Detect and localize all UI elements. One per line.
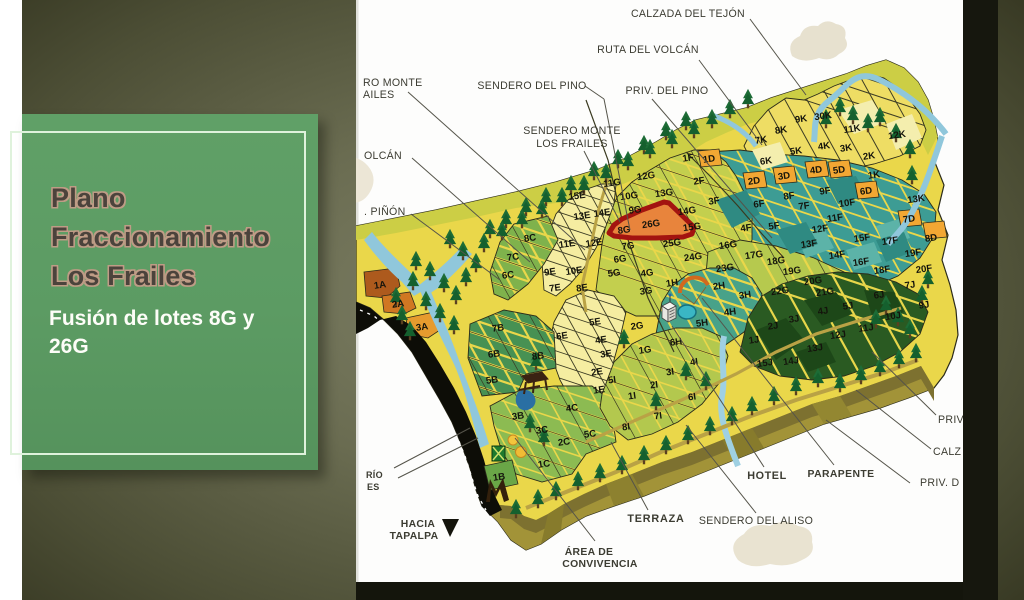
svg-text:2C: 2C [557, 436, 571, 449]
svg-text:RUTA DEL VOLCÁN: RUTA DEL VOLCÁN [597, 43, 699, 56]
svg-text:7J: 7J [904, 279, 916, 291]
svg-text:TERRAZA: TERRAZA [627, 513, 684, 525]
svg-text:4D: 4D [809, 164, 823, 177]
svg-text:13J: 13J [806, 342, 823, 355]
svg-text:6K: 6K [759, 155, 773, 168]
svg-text:12F: 12F [811, 223, 829, 236]
svg-text:8C: 8C [523, 232, 537, 245]
svg-text:CALZADA DEL TEJÓN: CALZADA DEL TEJÓN [631, 7, 745, 20]
svg-text:1B: 1B [492, 471, 506, 484]
svg-text:PARAPENTE: PARAPENTE [808, 469, 875, 480]
svg-text:4E: 4E [594, 334, 608, 347]
svg-text:RO MONTE: RO MONTE [363, 77, 423, 89]
svg-text:3B: 3B [511, 410, 525, 423]
svg-text:5B: 5B [485, 374, 499, 387]
svg-text:14J: 14J [782, 355, 799, 368]
svg-text:18F: 18F [873, 264, 891, 277]
svg-text:8D: 8D [924, 232, 938, 245]
svg-text:3J: 3J [788, 313, 800, 325]
svg-text:7E: 7E [548, 282, 562, 295]
svg-text:14F: 14F [828, 249, 846, 262]
svg-text:2K: 2K [862, 150, 876, 163]
svg-text:1F: 1F [682, 152, 695, 164]
svg-text:4H: 4H [723, 306, 737, 319]
svg-text:8F: 8F [783, 190, 796, 202]
svg-text:RÍO: RÍO [366, 470, 383, 480]
svg-text:19F: 19F [904, 247, 922, 260]
svg-text:4F: 4F [740, 222, 753, 234]
svg-text:HACIA: HACIA [401, 519, 436, 530]
svg-text:6H: 6H [669, 336, 683, 349]
svg-text:1E: 1E [592, 384, 606, 397]
svg-text:. PIÑÓN: . PIÑÓN [364, 205, 406, 218]
svg-text:SENDERO MONTE: SENDERO MONTE [523, 125, 621, 137]
svg-text:1K: 1K [867, 169, 881, 182]
svg-text:4G: 4G [640, 267, 654, 280]
svg-text:11F: 11F [826, 212, 844, 225]
svg-text:1H: 1H [665, 277, 679, 290]
svg-text:2G: 2G [630, 320, 644, 333]
svg-text:16F: 16F [852, 256, 870, 269]
svg-text:PRIV: PRIV [938, 414, 965, 426]
svg-text:2A: 2A [391, 298, 405, 311]
svg-text:3F: 3F [708, 195, 721, 207]
svg-text:1J: 1J [748, 334, 760, 346]
svg-text:4J: 4J [817, 305, 829, 317]
svg-text:20F: 20F [915, 263, 933, 276]
svg-text:CONVIVENCIA: CONVIVENCIA [562, 559, 638, 570]
svg-text:2J: 2J [767, 320, 779, 332]
svg-text:3H: 3H [738, 289, 752, 302]
svg-text:6C: 6C [501, 269, 515, 282]
svg-text:SENDERO DEL ALISO: SENDERO DEL ALISO [699, 515, 813, 527]
svg-text:OLCÁN: OLCÁN [364, 149, 402, 162]
svg-text:9G: 9G [628, 204, 642, 217]
svg-text:7C: 7C [506, 251, 520, 264]
svg-text:1G: 1G [638, 344, 652, 357]
svg-text:1A: 1A [373, 279, 387, 292]
svg-text:7D: 7D [902, 213, 916, 226]
svg-text:5F: 5F [768, 220, 781, 232]
svg-text:6D: 6D [859, 185, 873, 198]
svg-text:2H: 2H [712, 280, 726, 293]
svg-text:7F: 7F [798, 200, 811, 212]
svg-text:8B: 8B [531, 350, 545, 363]
svg-text:8K: 8K [774, 124, 788, 137]
svg-text:SENDERO DEL PINO: SENDERO DEL PINO [477, 80, 586, 92]
svg-text:9J: 9J [918, 299, 930, 311]
svg-text:LOS FRAILES: LOS FRAILES [536, 138, 608, 150]
svg-text:6J: 6J [873, 289, 885, 301]
svg-text:3K: 3K [839, 142, 853, 155]
svg-text:5H: 5H [695, 317, 709, 330]
svg-text:5E: 5E [588, 316, 602, 329]
svg-text:TAPALPA: TAPALPA [390, 531, 439, 542]
svg-text:7G: 7G [621, 240, 635, 253]
svg-text:3D: 3D [777, 170, 791, 183]
svg-text:15J: 15J [756, 357, 773, 370]
svg-text:5D: 5D [832, 164, 846, 177]
svg-text:CALZ: CALZ [933, 446, 962, 458]
svg-text:3C: 3C [535, 424, 549, 437]
svg-text:5C: 5C [583, 428, 597, 441]
svg-text:4K: 4K [817, 140, 831, 153]
svg-text:ÁREA DE: ÁREA DE [565, 545, 613, 558]
svg-text:3G: 3G [639, 285, 653, 298]
svg-text:PRIV. DEL PINO: PRIV. DEL PINO [626, 85, 709, 97]
svg-text:5K: 5K [789, 145, 803, 158]
svg-text:12J: 12J [829, 329, 846, 342]
svg-text:2E: 2E [590, 366, 604, 379]
svg-text:11J: 11J [858, 322, 875, 335]
svg-text:6G: 6G [613, 253, 627, 266]
svg-text:AILES: AILES [363, 89, 395, 101]
svg-text:6E: 6E [555, 330, 569, 343]
svg-text:9E: 9E [543, 266, 557, 279]
svg-text:9K: 9K [794, 113, 808, 126]
svg-text:9F: 9F [819, 185, 832, 197]
svg-text:8E: 8E [575, 282, 589, 295]
svg-text:13F: 13F [800, 238, 818, 251]
svg-text:7K: 7K [754, 134, 768, 147]
svg-text:5J: 5J [842, 300, 854, 312]
svg-text:10F: 10F [838, 197, 856, 210]
svg-text:HOTEL: HOTEL [747, 470, 787, 482]
svg-text:6B: 6B [487, 348, 501, 361]
svg-text:3E: 3E [599, 348, 613, 361]
svg-text:15F: 15F [853, 232, 871, 245]
svg-text:5G: 5G [607, 267, 621, 280]
svg-text:6F: 6F [753, 198, 766, 210]
svg-text:17F: 17F [881, 235, 899, 248]
svg-text:2F: 2F [693, 175, 706, 187]
svg-text:2D: 2D [747, 175, 761, 188]
svg-text:PRIV. D: PRIV. D [920, 477, 959, 489]
svg-text:4C: 4C [565, 402, 579, 415]
svg-text:10J: 10J [884, 310, 901, 323]
svg-text:7B: 7B [491, 322, 505, 335]
svg-text:ES: ES [367, 482, 380, 492]
svg-text:3A: 3A [415, 321, 429, 334]
